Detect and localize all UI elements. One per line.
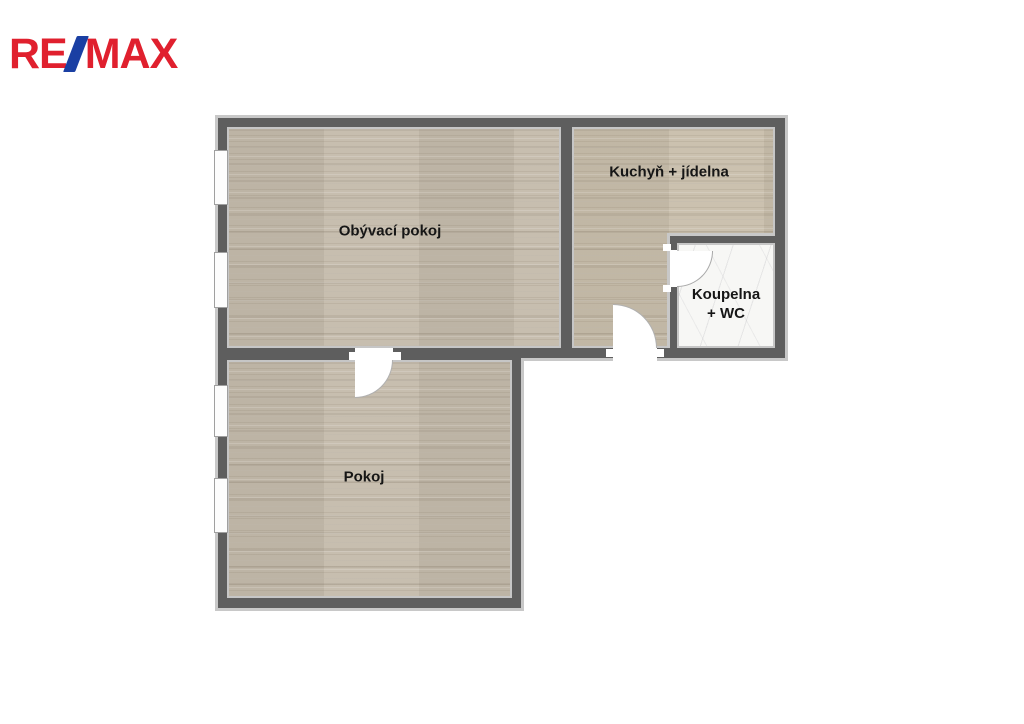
window-living-2 [214, 252, 228, 308]
room-label-living: Obývací pokoj [339, 222, 442, 241]
window-bedroom-2 [214, 478, 228, 533]
door-frame-notch [663, 285, 671, 292]
door-opening-kitchen-entry [613, 348, 657, 362]
door-frame-notch [392, 352, 401, 360]
remax-logo: RE MAX [9, 33, 177, 76]
room-label-bedroom: Pokoj [344, 468, 385, 487]
room-label-kitchen: Kuchyň + jídelna [609, 163, 729, 182]
door-opening-bathroom [670, 250, 677, 287]
window-bedroom-1 [214, 385, 228, 437]
door-frame-notch [349, 352, 356, 360]
door-frame-notch [663, 244, 671, 251]
room-label-bathroom-line1: Koupelna [692, 286, 760, 303]
room-label-bathroom: Koupelna + WC [692, 285, 760, 323]
window-living-1 [214, 150, 228, 205]
room-label-bathroom-line2: + WC [707, 305, 745, 322]
floor-plan: RE MAX Obývací pokoj Kuchyň + jídelna Ko… [0, 0, 1024, 724]
door-frame-notch [657, 349, 664, 357]
door-frame-notch [606, 349, 613, 357]
logo-text-max: MAX [85, 33, 178, 76]
logo-text-re: RE [9, 33, 67, 76]
door-opening-living-bedroom [355, 348, 393, 360]
